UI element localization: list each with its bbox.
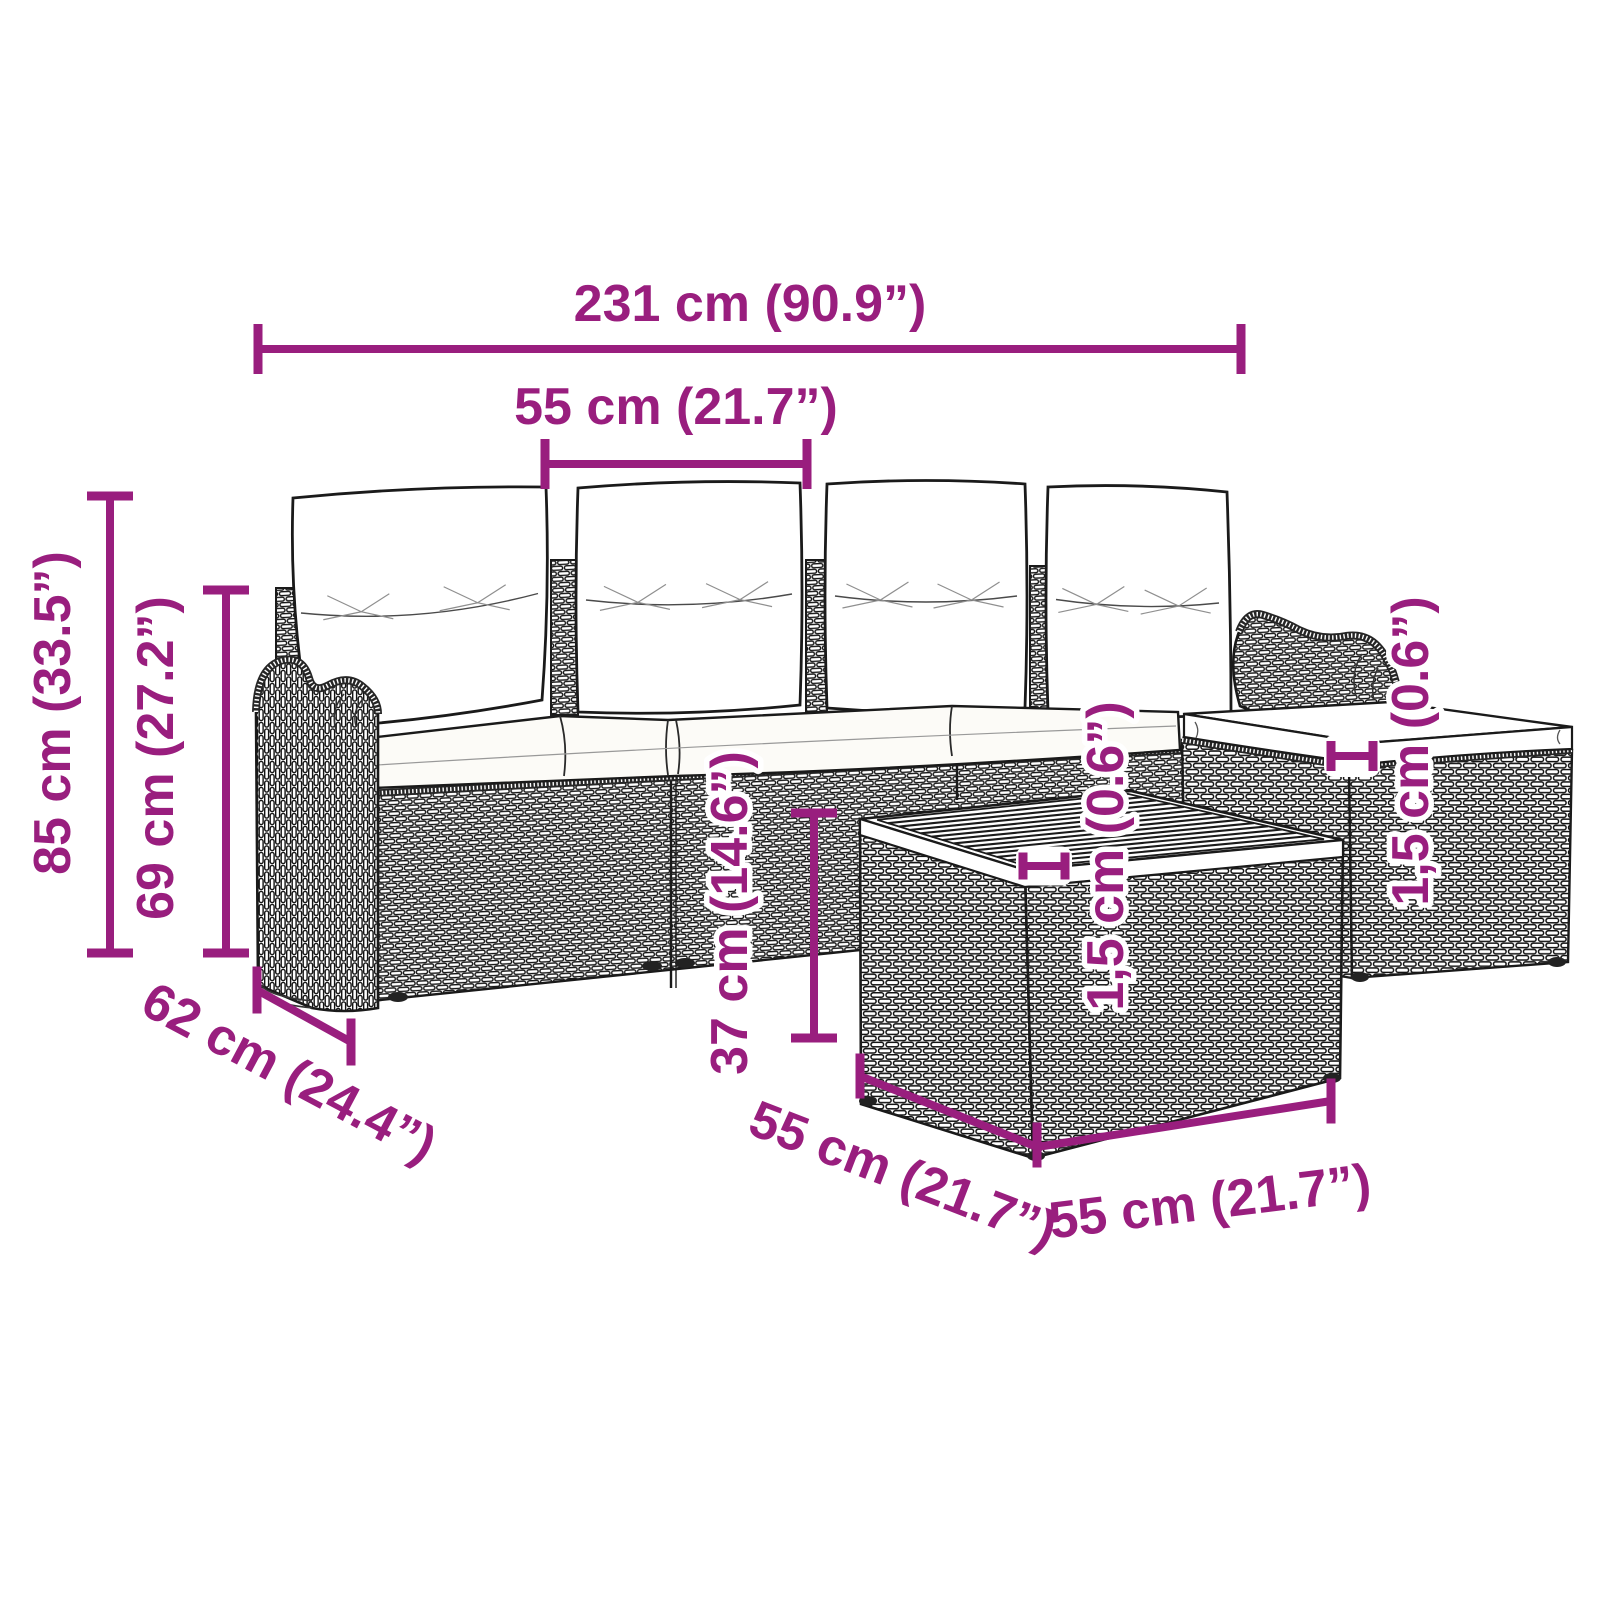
svg-text:69 cm (27.2”): 69 cm (27.2”) xyxy=(127,596,185,920)
svg-text:55 cm (21.7”): 55 cm (21.7”) xyxy=(514,378,838,436)
svg-text:37 cm (14.6”): 37 cm (14.6”) xyxy=(701,751,759,1075)
svg-text:1,5 cm (0.6”): 1,5 cm (0.6”) xyxy=(1382,596,1440,905)
svg-text:1,5 cm (0.6”): 1,5 cm (0.6”) xyxy=(1077,701,1135,1010)
svg-text:85 cm (33.5”): 85 cm (33.5”) xyxy=(24,551,82,875)
svg-text:231 cm (90.9”): 231 cm (90.9”) xyxy=(574,275,927,333)
